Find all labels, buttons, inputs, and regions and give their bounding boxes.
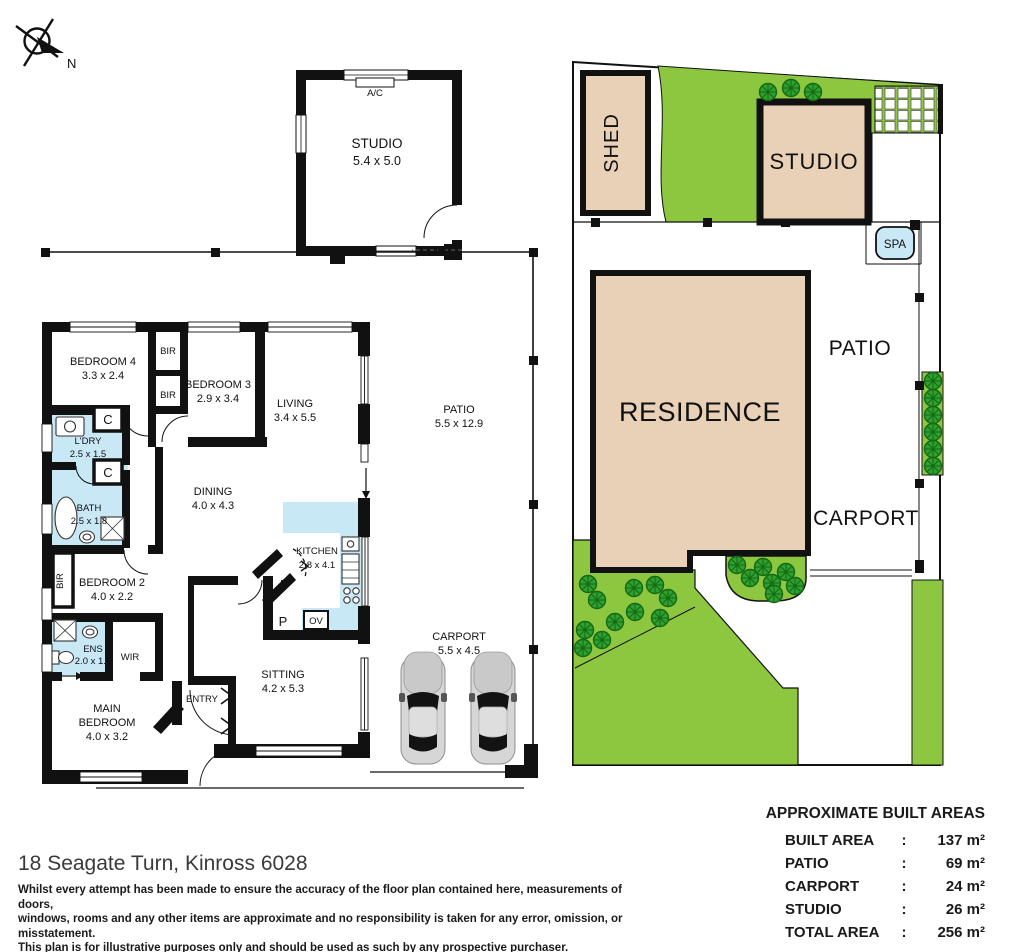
main-bedroom-label-1: MAIN [93, 703, 121, 715]
car-icon [469, 652, 517, 764]
built-areas-table: APPROXIMATE BUILT AREAS BUILT AREA : 137… [742, 805, 985, 944]
cupboard1-label: C [103, 412, 112, 427]
bath-label: BATH [77, 503, 102, 514]
studio-plan-label: STUDIO [351, 136, 402, 151]
cupboard2-label: C [103, 465, 112, 480]
main-bedroom-dims: 4.0 x 3.2 [86, 731, 128, 743]
area-row-label: TOTAL AREA [785, 924, 895, 941]
carport-label: CARPORT [432, 631, 486, 643]
area-row-value: 137 m² [913, 832, 985, 849]
living-label: LIVING [277, 398, 313, 410]
bir-mid-label: BIR [160, 390, 176, 401]
property-address: 18 Seagate Turn, Kinross 6028 [18, 852, 308, 876]
ldry-dims: 2.5 x 1.5 [70, 449, 106, 460]
table-row: PATIO : 69 m² [742, 852, 985, 875]
area-row-label: BUILT AREA [785, 832, 895, 849]
ldry-label: L'DRY [75, 436, 103, 447]
wir-label: WIR [121, 652, 140, 663]
sitting-label: SITTING [261, 669, 304, 681]
toilet-icon [59, 652, 74, 664]
ac-label: A/C [367, 88, 383, 99]
area-row-label: STUDIO [785, 901, 895, 918]
table-row: CARPORT : 24 m² [742, 875, 985, 898]
fridge-label: F [280, 577, 288, 592]
area-row-value: 69 m² [913, 855, 985, 872]
area-row-label: CARPORT [785, 878, 895, 895]
area-row-sep: : [895, 832, 913, 849]
bath-dims: 2.5 x 1.8 [71, 516, 107, 527]
area-row-value: 256 m² [913, 924, 985, 941]
area-row-value: 24 m² [913, 878, 985, 895]
patio-dims: 5.5 x 12.9 [435, 418, 483, 430]
bir-top-label: BIR [160, 346, 176, 357]
main-bedroom-label-2: BEDROOM [79, 717, 136, 729]
bedroom3-dims: 2.9 x 3.4 [197, 393, 239, 405]
disclaimer-line-3: This plan is for illustrative purposes o… [18, 941, 628, 952]
disclaimer-line-1: Whilst every attempt has been made to en… [18, 883, 628, 912]
bedroom2-label: BEDROOM 2 [79, 577, 145, 589]
dining-dims: 4.0 x 4.3 [192, 500, 234, 512]
north-arrow-icon: N [16, 19, 76, 71]
ens-label: ENS [83, 644, 103, 655]
area-row-label: PATIO [785, 855, 895, 872]
kitchen-label: KITCHEN [296, 546, 338, 557]
pantry-label: P [279, 614, 288, 629]
oven-label: OV [309, 616, 323, 627]
floorplan-drawing: N A/C STUDIO 5.4 x 5.0 [0, 0, 1024, 800]
entry-label: ENTRY [186, 694, 219, 705]
site-carport-label: CARPORT [813, 507, 919, 530]
car-icon [399, 652, 447, 764]
site-plan: SHED STUDIO SPA RESIDENCE PATIO CARPORT [573, 62, 943, 765]
ens-dims: 2.0 x 1.6 [75, 656, 111, 667]
bedroom3-label: BEDROOM 3 [185, 379, 251, 391]
kitchen-dims: 2.8 x 4.1 [299, 560, 335, 571]
disclaimer-line-2: windows, rooms and any other items are a… [18, 912, 628, 941]
north-label: N [67, 56, 76, 71]
area-row-sep: : [895, 901, 913, 918]
carport-dims: 5.5 x 4.5 [438, 645, 480, 657]
studio-plan: A/C STUDIO 5.4 x 5.0 [296, 70, 462, 264]
bedroom4-label: BEDROOM 4 [70, 356, 136, 368]
patio-label: PATIO [443, 404, 475, 416]
sitting-dims: 4.2 x 5.3 [262, 683, 304, 695]
living-dims: 3.4 x 5.5 [274, 412, 316, 424]
floorplan-page: N A/C STUDIO 5.4 x 5.0 [0, 0, 1024, 952]
lawn-strip-right [912, 580, 943, 765]
area-row-value: 26 m² [913, 901, 985, 918]
table-row: BUILT AREA : 137 m² [742, 829, 985, 852]
bir-left-label: BIR [55, 573, 66, 589]
site-shed-label: SHED [601, 113, 623, 173]
ac-unit-icon [356, 78, 394, 87]
area-row-sep: : [895, 924, 913, 941]
studio-plan-dims: 5.4 x 5.0 [353, 154, 401, 168]
site-residence-label: RESIDENCE [619, 397, 781, 427]
table-row: TOTAL AREA : 256 m² [742, 921, 985, 944]
area-row-sep: : [895, 878, 913, 895]
site-patio-label: PATIO [829, 337, 891, 360]
area-row-sep: : [895, 855, 913, 872]
bedroom4-dims: 3.3 x 2.4 [82, 370, 124, 382]
dining-label: DINING [194, 486, 233, 498]
disclaimer-text: Whilst every attempt has been made to en… [18, 883, 628, 952]
site-studio-label: STUDIO [769, 149, 858, 174]
site-spa-label: SPA [884, 239, 906, 251]
bedroom2-dims: 4.0 x 2.2 [91, 591, 133, 603]
table-row: STUDIO : 26 m² [742, 898, 985, 921]
built-areas-title: APPROXIMATE BUILT AREAS [742, 805, 985, 823]
paving-grid [875, 86, 941, 133]
